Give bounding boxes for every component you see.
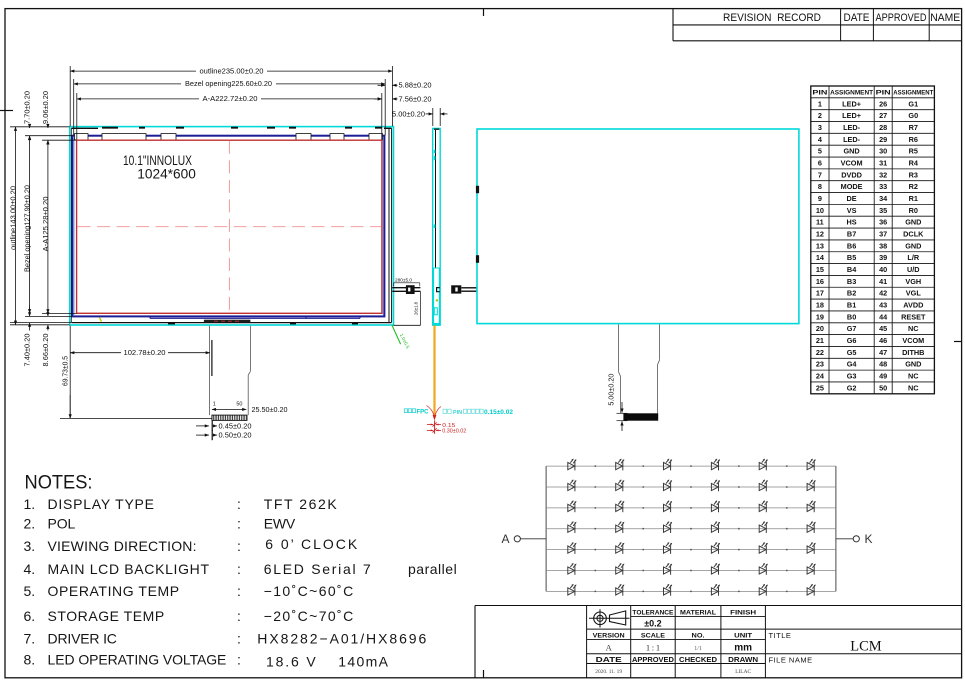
svg-text:B7: B7 — [847, 230, 856, 239]
svg-text:MODE: MODE — [841, 182, 863, 191]
svg-text:ASSIGNMENT: ASSIGNMENT — [830, 90, 874, 97]
svg-text:DCLK: DCLK — [903, 230, 924, 239]
svg-text:8: 8 — [818, 182, 822, 191]
svg-text:SCALE: SCALE — [641, 632, 665, 639]
svg-text:38: 38 — [879, 241, 887, 250]
svg-text:CHECKED: CHECKED — [679, 655, 718, 664]
svg-text:7.70±0.20: 7.70±0.20 — [23, 91, 32, 124]
svg-text:6: 6 — [818, 158, 822, 167]
svg-text:11: 11 — [816, 218, 824, 227]
svg-text:DVDD: DVDD — [841, 170, 862, 179]
svg-text:GND: GND — [905, 218, 921, 227]
svg-text:R2: R2 — [909, 182, 918, 191]
svg-text:9.06±0.20: 9.06±0.20 — [41, 91, 50, 124]
svg-text:Bezel opening127.90±0.20: Bezel opening127.90±0.20 — [23, 185, 32, 272]
svg-text:TOLERANCE: TOLERANCE — [632, 609, 673, 616]
svg-text:G7: G7 — [847, 324, 857, 333]
svg-text:L/R: L/R — [907, 253, 919, 262]
svg-text:35: 35 — [879, 206, 887, 215]
svg-text:0.15±0.02: 0.15±0.02 — [484, 409, 514, 416]
svg-text:R0: R0 — [909, 206, 918, 215]
svg-text:AVDD: AVDD — [903, 301, 923, 310]
svg-text:102.78±0.20: 102.78±0.20 — [124, 348, 166, 357]
svg-text::: : — [237, 583, 241, 599]
svg-text:DRIVER IC: DRIVER IC — [48, 631, 117, 647]
svg-text:10.1"INNOLUX: 10.1"INNOLUX — [123, 153, 192, 168]
svg-text:K: K — [864, 532, 872, 546]
svg-text:17: 17 — [816, 289, 824, 298]
svg-text:26: 26 — [879, 99, 887, 108]
svg-text:TITLE: TITLE — [769, 631, 792, 640]
svg-text:parallel: parallel — [408, 561, 457, 577]
svg-text:33: 33 — [879, 182, 887, 191]
svg-text:B1: B1 — [847, 301, 856, 310]
svg-text:15: 15 — [816, 265, 824, 274]
svg-text:REVISION RECORD: REVISION RECORD — [723, 12, 821, 24]
svg-text:NC: NC — [908, 383, 919, 392]
svg-text:28: 28 — [879, 123, 887, 132]
svg-text:GND: GND — [905, 360, 921, 369]
svg-text:outline235.00±0.20: outline235.00±0.20 — [200, 66, 264, 75]
svg-text:37: 37 — [879, 230, 887, 239]
svg-text:LED-: LED- — [843, 123, 861, 132]
svg-text:GND: GND — [843, 147, 859, 156]
svg-text:B3: B3 — [847, 277, 856, 286]
svg-text::: : — [237, 516, 241, 532]
svg-text:GND: GND — [905, 241, 921, 250]
svg-text:30: 30 — [879, 147, 887, 156]
svg-text::: : — [237, 652, 241, 668]
svg-text:DE: DE — [847, 194, 857, 203]
svg-text:6.: 6. — [24, 608, 36, 624]
svg-text:2: 2 — [818, 111, 822, 120]
svg-text:27: 27 — [879, 111, 887, 120]
svg-text:DRAWN: DRAWN — [728, 655, 758, 664]
svg-text:LCM: LCM — [850, 639, 882, 655]
svg-text:43: 43 — [879, 301, 887, 310]
svg-text:1: 1 — [818, 99, 822, 108]
svg-text:45: 45 — [879, 324, 887, 333]
svg-text:DITHB: DITHB — [902, 348, 924, 357]
svg-text:0.50±0.20: 0.50±0.20 — [219, 431, 252, 440]
svg-text:32: 32 — [879, 170, 887, 179]
svg-text:A-A125.28±0.20: A-A125.28±0.20 — [41, 197, 50, 252]
svg-text:VGL: VGL — [906, 289, 922, 298]
svg-text:B6: B6 — [847, 241, 856, 250]
svg-text:DATE: DATE — [596, 655, 622, 664]
svg-text:1/1: 1/1 — [694, 646, 702, 652]
svg-text:18.6 V: 18.6 V — [266, 654, 316, 670]
svg-text:24: 24 — [816, 372, 825, 381]
svg-text:5.00±0.20: 5.00±0.20 — [392, 109, 425, 118]
svg-text:36: 36 — [879, 218, 887, 227]
svg-text:41: 41 — [879, 277, 887, 286]
svg-text:4: 4 — [818, 135, 823, 144]
svg-text:DATE: DATE — [844, 12, 870, 24]
svg-text:G1: G1 — [908, 99, 918, 108]
svg-text:R4: R4 — [909, 158, 919, 167]
svg-text:8.66±0.20: 8.66±0.20 — [41, 334, 50, 367]
svg-text:−10˚C~60˚C: −10˚C~60˚C — [264, 583, 354, 599]
svg-text:7.40±0.20: 7.40±0.20 — [23, 334, 32, 367]
svg-text:1: 1 — [213, 402, 216, 408]
svg-text:140mA: 140mA — [338, 654, 388, 670]
svg-text:B2: B2 — [847, 289, 856, 298]
svg-text:19: 19 — [816, 312, 824, 321]
svg-text:31: 31 — [879, 158, 887, 167]
svg-text:VS: VS — [847, 206, 857, 215]
svg-text:PIN: PIN — [453, 410, 462, 416]
svg-text:POL: POL — [48, 516, 76, 532]
svg-text:6LED Serial 7: 6LED Serial 7 — [264, 561, 371, 577]
svg-text:MATERIAL: MATERIAL — [680, 609, 716, 616]
svg-text:16: 16 — [816, 277, 824, 286]
svg-text:VERSION: VERSION — [593, 632, 626, 639]
svg-text:R6: R6 — [909, 135, 918, 144]
svg-text:APPROVED: APPROVED — [632, 655, 675, 664]
svg-text:±0.2: ±0.2 — [644, 619, 661, 629]
svg-text:B5: B5 — [847, 253, 856, 262]
svg-text:29: 29 — [879, 135, 887, 144]
svg-text:280±5.0: 280±5.0 — [395, 277, 412, 283]
svg-text:MAIN LCD BACKLIGHT: MAIN LCD BACKLIGHT — [48, 561, 210, 577]
svg-text:20: 20 — [816, 324, 824, 333]
svg-text:7.: 7. — [24, 631, 36, 647]
svg-text:5.00±0.20: 5.00±0.20 — [607, 374, 616, 406]
svg-text:FPC: FPC — [417, 410, 430, 416]
svg-text:1.: 1. — [24, 496, 36, 512]
svg-text:G5: G5 — [847, 348, 857, 357]
svg-text:NO.: NO. — [692, 632, 705, 639]
svg-text:LED-: LED- — [843, 135, 861, 144]
svg-text:4.: 4. — [24, 561, 36, 577]
svg-text:LED OPERATING VOLTAGE: LED OPERATING VOLTAGE — [48, 652, 227, 668]
svg-text:23: 23 — [816, 360, 824, 369]
svg-text:G6: G6 — [847, 336, 857, 345]
svg-text:2020. 11. 19: 2020. 11. 19 — [595, 669, 622, 675]
svg-text:40: 40 — [879, 265, 887, 274]
svg-text:NAME: NAME — [930, 12, 960, 24]
svg-text:8.: 8. — [24, 652, 36, 668]
svg-text:NC: NC — [908, 372, 919, 381]
svg-text:HX8282−A01/HX8696: HX8282−A01/HX8696 — [257, 631, 426, 647]
svg-text:3: 3 — [818, 123, 822, 132]
svg-text:A: A — [606, 642, 613, 652]
svg-text:mm: mm — [734, 643, 752, 654]
svg-text:39: 39 — [879, 253, 887, 262]
svg-text:R5: R5 — [909, 147, 918, 156]
svg-text:48: 48 — [879, 360, 887, 369]
svg-text:outline143.00±0.20: outline143.00±0.20 — [8, 186, 17, 250]
svg-text:7.56±0.20: 7.56±0.20 — [399, 94, 432, 103]
svg-text:NOTES:: NOTES: — [25, 471, 93, 493]
svg-text::: : — [237, 538, 241, 554]
svg-text:1 : 1: 1 : 1 — [646, 642, 660, 652]
svg-text:EWV: EWV — [264, 516, 296, 532]
svg-text:9: 9 — [818, 194, 822, 203]
svg-text:22: 22 — [816, 348, 824, 357]
svg-text:47: 47 — [879, 348, 887, 357]
svg-text:50: 50 — [236, 402, 242, 408]
svg-text:2.: 2. — [24, 516, 36, 532]
svg-text:UNIT: UNIT — [734, 632, 752, 639]
svg-text:VGH: VGH — [905, 277, 921, 286]
svg-text:A-A222.72±0.20: A-A222.72±0.20 — [203, 94, 258, 103]
svg-text:44: 44 — [879, 312, 888, 321]
svg-text:VCOM: VCOM — [902, 336, 924, 345]
svg-text:26±1.8: 26±1.8 — [414, 302, 419, 315]
svg-text:NC: NC — [908, 324, 919, 333]
svg-text::: : — [237, 496, 241, 512]
svg-text::: : — [237, 631, 241, 647]
svg-text:STORAGE TEMP: STORAGE TEMP — [48, 608, 165, 624]
svg-text:42: 42 — [879, 289, 887, 298]
svg-text:G0: G0 — [908, 111, 918, 120]
svg-text:49: 49 — [879, 372, 887, 381]
svg-text:LED+: LED+ — [842, 111, 861, 120]
svg-text:5.88±0.20: 5.88±0.20 — [399, 81, 432, 90]
svg-text:PIN: PIN — [876, 90, 891, 97]
svg-text:12: 12 — [816, 230, 824, 239]
svg-text:PIN: PIN — [812, 90, 827, 97]
svg-text:−20˚C~70˚C: −20˚C~70˚C — [264, 608, 354, 624]
svg-text:DISPLAY TYPE: DISPLAY TYPE — [48, 496, 155, 512]
svg-text:LED+: LED+ — [842, 99, 861, 108]
svg-text:25: 25 — [816, 383, 824, 392]
svg-text:VIEWING DIRECTION:: VIEWING DIRECTION: — [48, 538, 197, 554]
svg-text:FILE NAME: FILE NAME — [769, 655, 813, 664]
svg-text:G2: G2 — [847, 383, 857, 392]
svg-text:R7: R7 — [909, 123, 918, 132]
svg-text:R1: R1 — [909, 194, 918, 203]
svg-text:46: 46 — [879, 336, 887, 345]
svg-text:0.30±0.02: 0.30±0.02 — [442, 429, 466, 435]
svg-text:G3: G3 — [847, 372, 857, 381]
svg-text:A: A — [501, 532, 509, 546]
svg-text:10: 10 — [816, 206, 824, 215]
svg-text:5.: 5. — [24, 583, 36, 599]
svg-text:34: 34 — [879, 194, 888, 203]
svg-text:13: 13 — [816, 241, 824, 250]
svg-text::: : — [237, 561, 241, 577]
svg-text:VCOM: VCOM — [841, 158, 863, 167]
svg-text:0.45±0.20: 0.45±0.20 — [219, 421, 252, 430]
svg-text:B0: B0 — [847, 312, 856, 321]
svg-text:25.50±0.20: 25.50±0.20 — [252, 405, 288, 414]
svg-text:B4: B4 — [847, 265, 857, 274]
svg-text:HS: HS — [847, 218, 857, 227]
svg-text:50: 50 — [879, 383, 887, 392]
svg-text:R3: R3 — [909, 170, 918, 179]
svg-text:69.73±0.5: 69.73±0.5 — [60, 356, 69, 386]
svg-text:LILAC: LILAC — [735, 669, 751, 675]
svg-text:1.0±0.5: 1.0±0.5 — [399, 333, 411, 350]
svg-text:Bezel opening225.60±0.20: Bezel opening225.60±0.20 — [185, 79, 272, 88]
svg-text:FINISH: FINISH — [730, 609, 757, 616]
svg-text:14: 14 — [816, 253, 825, 262]
svg-text:ASSIGNMENT: ASSIGNMENT — [893, 90, 934, 97]
svg-text:7: 7 — [818, 170, 822, 179]
svg-text:21: 21 — [816, 336, 824, 345]
svg-text:APPROVED: APPROVED — [876, 12, 927, 24]
svg-text:18: 18 — [816, 301, 824, 310]
svg-text:5: 5 — [818, 147, 822, 156]
svg-text:G4: G4 — [847, 360, 858, 369]
svg-text:OPERATING TEMP: OPERATING TEMP — [48, 583, 180, 599]
svg-text:6 0’ CLOCK: 6 0’ CLOCK — [265, 536, 358, 552]
svg-text:3.: 3. — [24, 538, 36, 554]
svg-text::: : — [237, 608, 241, 624]
svg-text:U/D: U/D — [907, 265, 920, 274]
svg-text:RESET: RESET — [901, 312, 926, 321]
svg-text:TFT 262K: TFT 262K — [264, 496, 338, 512]
svg-text:1024*600: 1024*600 — [137, 167, 196, 182]
